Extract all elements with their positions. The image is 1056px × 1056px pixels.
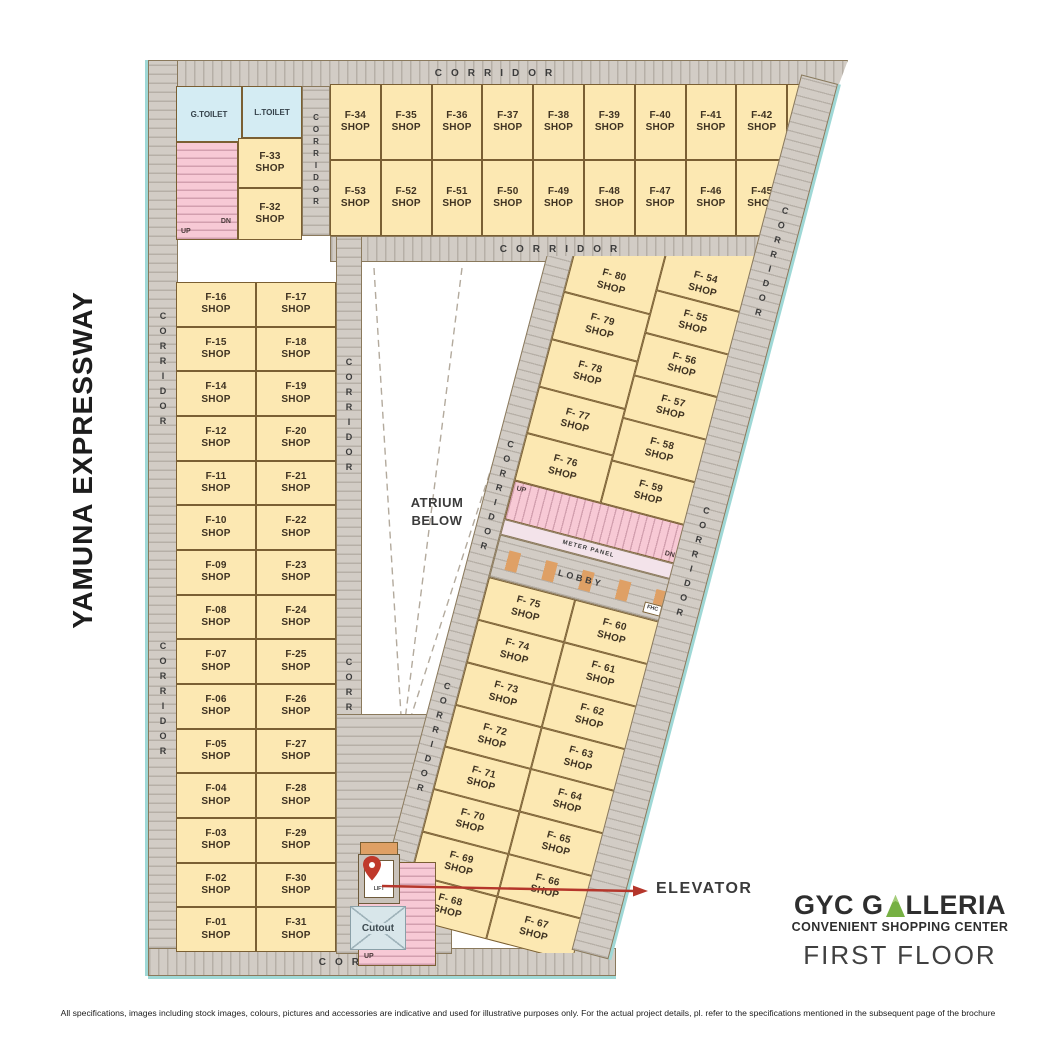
atrium-label-line2: BELOW	[392, 512, 482, 530]
shop-type-label: SHOP	[595, 122, 624, 135]
shop-cell: F-20 SHOP	[256, 416, 336, 461]
shop-number: F-15	[205, 337, 226, 350]
shop-type-label: SHOP	[747, 122, 776, 135]
shop-number: F-25	[285, 649, 306, 662]
shop-type-label: SHOP	[281, 706, 310, 719]
shop-number: F-32	[259, 202, 280, 215]
shop-number: F-33	[259, 151, 280, 164]
shop-cell: F-52 SHOP	[381, 160, 432, 236]
gents-toilet-label: G.TOILET	[191, 110, 228, 119]
shop-type-label: SHOP	[696, 198, 725, 211]
shop-type-label: SHOP	[281, 349, 310, 362]
shop-type-label: SHOP	[281, 885, 310, 898]
floor-plan-page: CORRIDOR CORRIDOR CORRIDOR CORRIDOR CORR…	[0, 0, 1056, 1056]
floor-name: FIRST FLOOR	[803, 940, 996, 971]
ladies-toilet-label: L.TOILET	[254, 108, 289, 117]
shop-type-label: SHOP	[281, 438, 310, 451]
shop-cell: F-34 SHOP	[330, 84, 381, 160]
gents-toilet: G.TOILET	[176, 86, 242, 142]
shop-number: F-11	[206, 471, 227, 484]
shop-number: F-05	[205, 739, 226, 752]
left-shop-row: F-09 SHOP F-23 SHOP	[176, 550, 336, 595]
shop-number: F-20	[285, 426, 306, 439]
left-shop-row: F-11 SHOP F-21 SHOP	[176, 461, 336, 506]
shop-type-label: SHOP	[341, 198, 370, 211]
shop-cell: F-39 SHOP	[584, 84, 635, 160]
shop-number: F-31	[285, 917, 306, 930]
shop-type-label: SHOP	[493, 122, 522, 135]
shop-type-label: SHOP	[201, 930, 230, 943]
shop-type-label: SHOP	[201, 885, 230, 898]
shop-number: F-28	[285, 783, 306, 796]
shop-cell: F-50 SHOP	[482, 160, 533, 236]
shop-cell: F-05 SHOP	[176, 729, 256, 774]
shop-cell: F-09 SHOP	[176, 550, 256, 595]
corridor-left: CORRIDOR CORRIDOR	[148, 60, 178, 976]
shop-type-label: SHOP	[392, 122, 421, 135]
corridor-mid-top-label: CORRIDOR	[500, 244, 626, 255]
corridor-toilet-right-label: CORRIDOR	[312, 113, 321, 209]
shop-number: F-04	[205, 783, 226, 796]
shop-cell: F-12 SHOP	[176, 416, 256, 461]
shop-cell: F-18 SHOP	[256, 327, 336, 372]
shop-number: F-52	[396, 186, 417, 199]
shop-number: F-37	[497, 110, 518, 123]
shop-cell: F-22 SHOP	[256, 505, 336, 550]
left-shop-row: F-03 SHOP F-29 SHOP	[176, 818, 336, 863]
brand-name: GYC G LLERIA	[794, 892, 1006, 919]
stair-dn-label: DN	[221, 218, 231, 225]
shop-cell: F-35 SHOP	[381, 84, 432, 160]
shop-type-label: SHOP	[201, 662, 230, 675]
shop-cell: F-48 SHOP	[584, 160, 635, 236]
shop-type-label: SHOP	[696, 122, 725, 135]
shop-cell: F-46 SHOP	[686, 160, 737, 236]
shop-type-label: SHOP	[201, 528, 230, 541]
shop-number: F-22	[285, 515, 306, 528]
shop-cell: F-11 SHOP	[176, 461, 256, 506]
shop-cell: F-07 SHOP	[176, 639, 256, 684]
shop-type-label: SHOP	[281, 572, 310, 585]
left-shop-row: F-16 SHOP F-17 SHOP	[176, 282, 336, 327]
shop-type-label: SHOP	[493, 198, 522, 211]
shop-cell: F-16 SHOP	[176, 282, 256, 327]
left-shops-block: F-16 SHOP F-17 SHOP F-15 SHOP F-18 SHOP …	[176, 282, 336, 952]
shop-number: F-26	[285, 694, 306, 707]
left-shop-row: F-04 SHOP F-28 SHOP	[176, 773, 336, 818]
shop-type-label: SHOP	[281, 304, 310, 317]
shop-number: F-29	[285, 828, 306, 841]
mountain-icon	[885, 894, 906, 918]
shop-number: F-46	[700, 186, 721, 199]
shop-cell: F-41 SHOP	[686, 84, 737, 160]
shop-number: F-41	[700, 110, 721, 123]
lift-shaft: LIFT	[358, 854, 400, 904]
shop-type-label: SHOP	[281, 528, 310, 541]
shop-number: F-51	[446, 186, 467, 199]
shop-number: F-18	[285, 337, 306, 350]
shop-cell: F-23 SHOP	[256, 550, 336, 595]
shop-type-label: SHOP	[442, 122, 471, 135]
shop-type-label: SHOP	[646, 198, 675, 211]
shop-cell: F-04 SHOP	[176, 773, 256, 818]
shop-number: F-08	[205, 605, 226, 618]
shop-cell: F-42 SHOP	[736, 84, 787, 160]
corridor-left-label-upper: CORRIDOR	[158, 311, 168, 431]
left-shop-row: F-14 SHOP F-19 SHOP	[176, 371, 336, 416]
shop-number: F-03	[205, 828, 226, 841]
shop-type-label: SHOP	[201, 349, 230, 362]
yamuna-expressway-label: YAMUNA EXPRESSWAY	[67, 260, 97, 660]
brand-subtitle: CONVENIENT SHOPPING CENTER	[792, 920, 1009, 934]
left-shop-row: F-15 SHOP F-18 SHOP	[176, 327, 336, 372]
shop-number: F-19	[285, 381, 306, 394]
shop-type-label: SHOP	[281, 483, 310, 496]
left-shop-row: F-06 SHOP F-26 SHOP	[176, 684, 336, 729]
shop-number: F-53	[345, 186, 366, 199]
shop-type-label: SHOP	[281, 617, 310, 630]
left-shop-row: F-08 SHOP F-24 SHOP	[176, 595, 336, 640]
shop-cell: F-02 SHOP	[176, 863, 256, 908]
shop-number: F-14	[205, 381, 226, 394]
corridor-top: CORRIDOR	[148, 60, 848, 87]
shop-type-label: SHOP	[201, 394, 230, 407]
shop-type-label: SHOP	[201, 572, 230, 585]
shop-number: F-07	[205, 649, 226, 662]
shop-number: F-10	[205, 515, 226, 528]
shop-number: F-39	[599, 110, 620, 123]
shop-type-label: SHOP	[281, 930, 310, 943]
brand-prefix: GYC G	[794, 892, 884, 919]
shop-type-label: SHOP	[255, 214, 284, 227]
shop-type-label: SHOP	[281, 751, 310, 764]
shop-cell: F-33 SHOP	[238, 138, 302, 188]
shop-cell: F-29 SHOP	[256, 818, 336, 863]
shop-cell: F-26 SHOP	[256, 684, 336, 729]
left-shop-row: F-12 SHOP F-20 SHOP	[176, 416, 336, 461]
shop-cell: F-27 SHOP	[256, 729, 336, 774]
shop-number: F-40	[649, 110, 670, 123]
shop-cell: F-53 SHOP	[330, 160, 381, 236]
shop-number: F-02	[205, 873, 226, 886]
ladies-toilet: L.TOILET	[242, 86, 302, 138]
shop-number: F-50	[497, 186, 518, 199]
cutout-area: Cutout	[350, 906, 406, 950]
shop-type-label: SHOP	[281, 796, 310, 809]
shop-cell: F-01 SHOP	[176, 907, 256, 952]
shop-cell: F-17 SHOP	[256, 282, 336, 327]
shop-number: F-27	[285, 739, 306, 752]
left-shop-row: F-07 SHOP F-25 SHOP	[176, 639, 336, 684]
shop-cell: F-14 SHOP	[176, 371, 256, 416]
fhc-label: FHC	[646, 605, 658, 614]
shop-number: F-21	[285, 471, 306, 484]
shop-number: F-42	[751, 110, 772, 123]
lift-label: LIFT	[374, 886, 385, 892]
shop-type-label: SHOP	[201, 438, 230, 451]
shop-type-label: SHOP	[442, 198, 471, 211]
stair-up-label: UP	[181, 228, 191, 235]
shop-type-label: SHOP	[646, 122, 675, 135]
shop-cell: F-21 SHOP	[256, 461, 336, 506]
shop-type-label: SHOP	[201, 706, 230, 719]
atrium-label-line1: ATRIUM	[392, 494, 482, 512]
shop-number: F-48	[599, 186, 620, 199]
top-shops-row-1: F-34 SHOP F-35 SHOP F-36 SHOP F-37 SHOP …	[330, 84, 838, 160]
lift-car: LIFT	[364, 860, 394, 898]
shop-number: F-38	[548, 110, 569, 123]
shop-cell: F-15 SHOP	[176, 327, 256, 372]
shop-cell: F-37 SHOP	[482, 84, 533, 160]
shop-number: F-09	[205, 560, 226, 573]
shop-type-label: SHOP	[201, 304, 230, 317]
shop-number: F-17	[285, 292, 306, 305]
shop-cell: F-32 SHOP	[238, 188, 302, 240]
left-shop-row: F-02 SHOP F-30 SHOP	[176, 863, 336, 908]
staircase-northwest: UP DN	[176, 142, 238, 240]
shop-cell: F-24 SHOP	[256, 595, 336, 640]
shop-number: F-16	[205, 292, 226, 305]
shop-number: F-47	[649, 186, 670, 199]
brand-logo: GYC G LLERIA CONVENIENT SHOPPING CENTER …	[786, 892, 1014, 971]
shop-type-label: SHOP	[201, 751, 230, 764]
left-shop-row: F-05 SHOP F-27 SHOP	[176, 729, 336, 774]
shop-type-label: SHOP	[392, 198, 421, 211]
corridor-inner-left-label-upper: CORRIDOR	[344, 357, 354, 477]
shop-number: F-49	[548, 186, 569, 199]
shop-cell: F-10 SHOP	[176, 505, 256, 550]
corridor-toilet-right: CORRIDOR	[302, 86, 330, 236]
shop-type-label: SHOP	[201, 617, 230, 630]
shop-type-label: SHOP	[544, 198, 573, 211]
shop-number: F-12	[205, 426, 226, 439]
shop-type-label: SHOP	[544, 122, 573, 135]
shop-number: F-36	[446, 110, 467, 123]
shop-cell: F-19 SHOP	[256, 371, 336, 416]
shop-type-label: SHOP	[201, 796, 230, 809]
top-shops-block: F-34 SHOP F-35 SHOP F-36 SHOP F-37 SHOP …	[330, 84, 838, 236]
shop-cell: F-36 SHOP	[432, 84, 483, 160]
shop-number: F-24	[285, 605, 306, 618]
shop-cell: F-25 SHOP	[256, 639, 336, 684]
corridor-top-label: CORRIDOR	[435, 68, 561, 79]
shop-number: F-06	[205, 694, 226, 707]
shop-number: F-01	[205, 917, 226, 930]
shop-number: F-30	[285, 873, 306, 886]
shop-type-label: SHOP	[281, 840, 310, 853]
shop-cell: F-30 SHOP	[256, 863, 336, 908]
shop-number: F-23	[285, 560, 306, 573]
disclaimer-text: All specifications, images including sto…	[0, 1008, 1056, 1018]
left-shop-row: F-10 SHOP F-22 SHOP	[176, 505, 336, 550]
shop-number: F-35	[396, 110, 417, 123]
stair-up-label: UP	[364, 953, 374, 960]
cutout-label: Cutout	[360, 923, 396, 934]
shop-cell: F-08 SHOP	[176, 595, 256, 640]
corridor-left-label-lower: CORRIDOR	[158, 641, 168, 761]
shop-type-label: SHOP	[281, 394, 310, 407]
shop-type-label: SHOP	[255, 163, 284, 176]
stair-up-label: UP	[516, 485, 527, 494]
shop-cell: F-28 SHOP	[256, 773, 336, 818]
shop-cell: F-47 SHOP	[635, 160, 686, 236]
shop-type-label: SHOP	[341, 122, 370, 135]
brand-suffix: LLERIA	[906, 892, 1007, 919]
shop-type-label: SHOP	[281, 662, 310, 675]
left-shop-row: F-01 SHOP F-31 SHOP	[176, 907, 336, 952]
elevator-label: ELEVATOR	[656, 880, 752, 898]
shop-type-label: SHOP	[201, 483, 230, 496]
shop-type-label: SHOP	[595, 198, 624, 211]
atrium-label: ATRIUM BELOW	[392, 494, 482, 529]
shop-cell: F-51 SHOP	[432, 160, 483, 236]
shop-cell: F-38 SHOP	[533, 84, 584, 160]
shop-cell: F-06 SHOP	[176, 684, 256, 729]
shop-cell: F-31 SHOP	[256, 907, 336, 952]
shop-cell: F-40 SHOP	[635, 84, 686, 160]
shop-cell: F-03 SHOP	[176, 818, 256, 863]
shop-cell: F-49 SHOP	[533, 160, 584, 236]
right-wing-rotated: CORRIDOR CORRIDOR F- 80 SHOP F- 79 SHOP	[375, 256, 760, 953]
shop-number: F-34	[345, 110, 366, 123]
shop-type-label: SHOP	[201, 840, 230, 853]
